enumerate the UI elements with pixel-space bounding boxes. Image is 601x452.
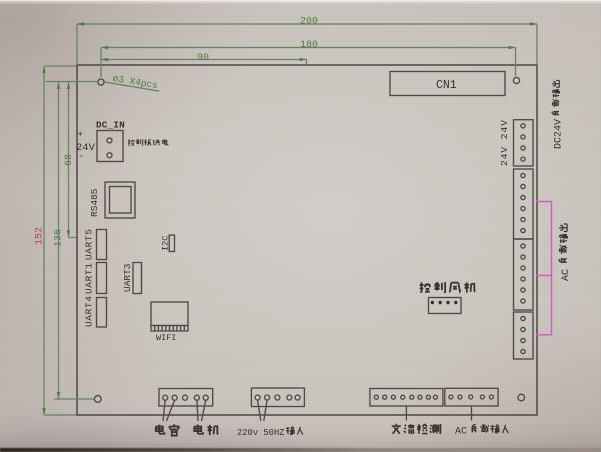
svg-text:220v 50HZ: 220v 50HZ bbox=[237, 428, 285, 438]
svg-text:UART4: UART4 bbox=[84, 295, 95, 327]
svg-text:UART5: UART5 bbox=[84, 228, 95, 260]
svg-text:RS485: RS485 bbox=[89, 188, 100, 217]
svg-text:90: 90 bbox=[197, 53, 209, 64]
svg-text:24V 24V: 24V 24V bbox=[499, 119, 510, 166]
svg-text:AC: AC bbox=[561, 269, 572, 281]
svg-text:WIFI: WIFI bbox=[156, 333, 176, 343]
svg-text:AC: AC bbox=[455, 427, 467, 438]
svg-text:+: + bbox=[78, 130, 83, 140]
svg-text:136: 136 bbox=[54, 229, 65, 247]
svg-text:ø3 X4pcs: ø3 X4pcs bbox=[112, 73, 159, 91]
svg-text:200: 200 bbox=[300, 17, 318, 28]
svg-text:DC_IN: DC_IN bbox=[96, 120, 125, 131]
svg-text:-: - bbox=[78, 152, 84, 163]
svg-text:68: 68 bbox=[64, 154, 75, 166]
svg-text:DC24V: DC24V bbox=[554, 119, 565, 149]
svg-text:152: 152 bbox=[35, 227, 46, 245]
svg-text:UART1: UART1 bbox=[84, 262, 95, 294]
svg-text:CN1: CN1 bbox=[436, 79, 457, 92]
svg-text:UART3: UART3 bbox=[122, 263, 133, 292]
svg-text:180: 180 bbox=[300, 40, 318, 51]
